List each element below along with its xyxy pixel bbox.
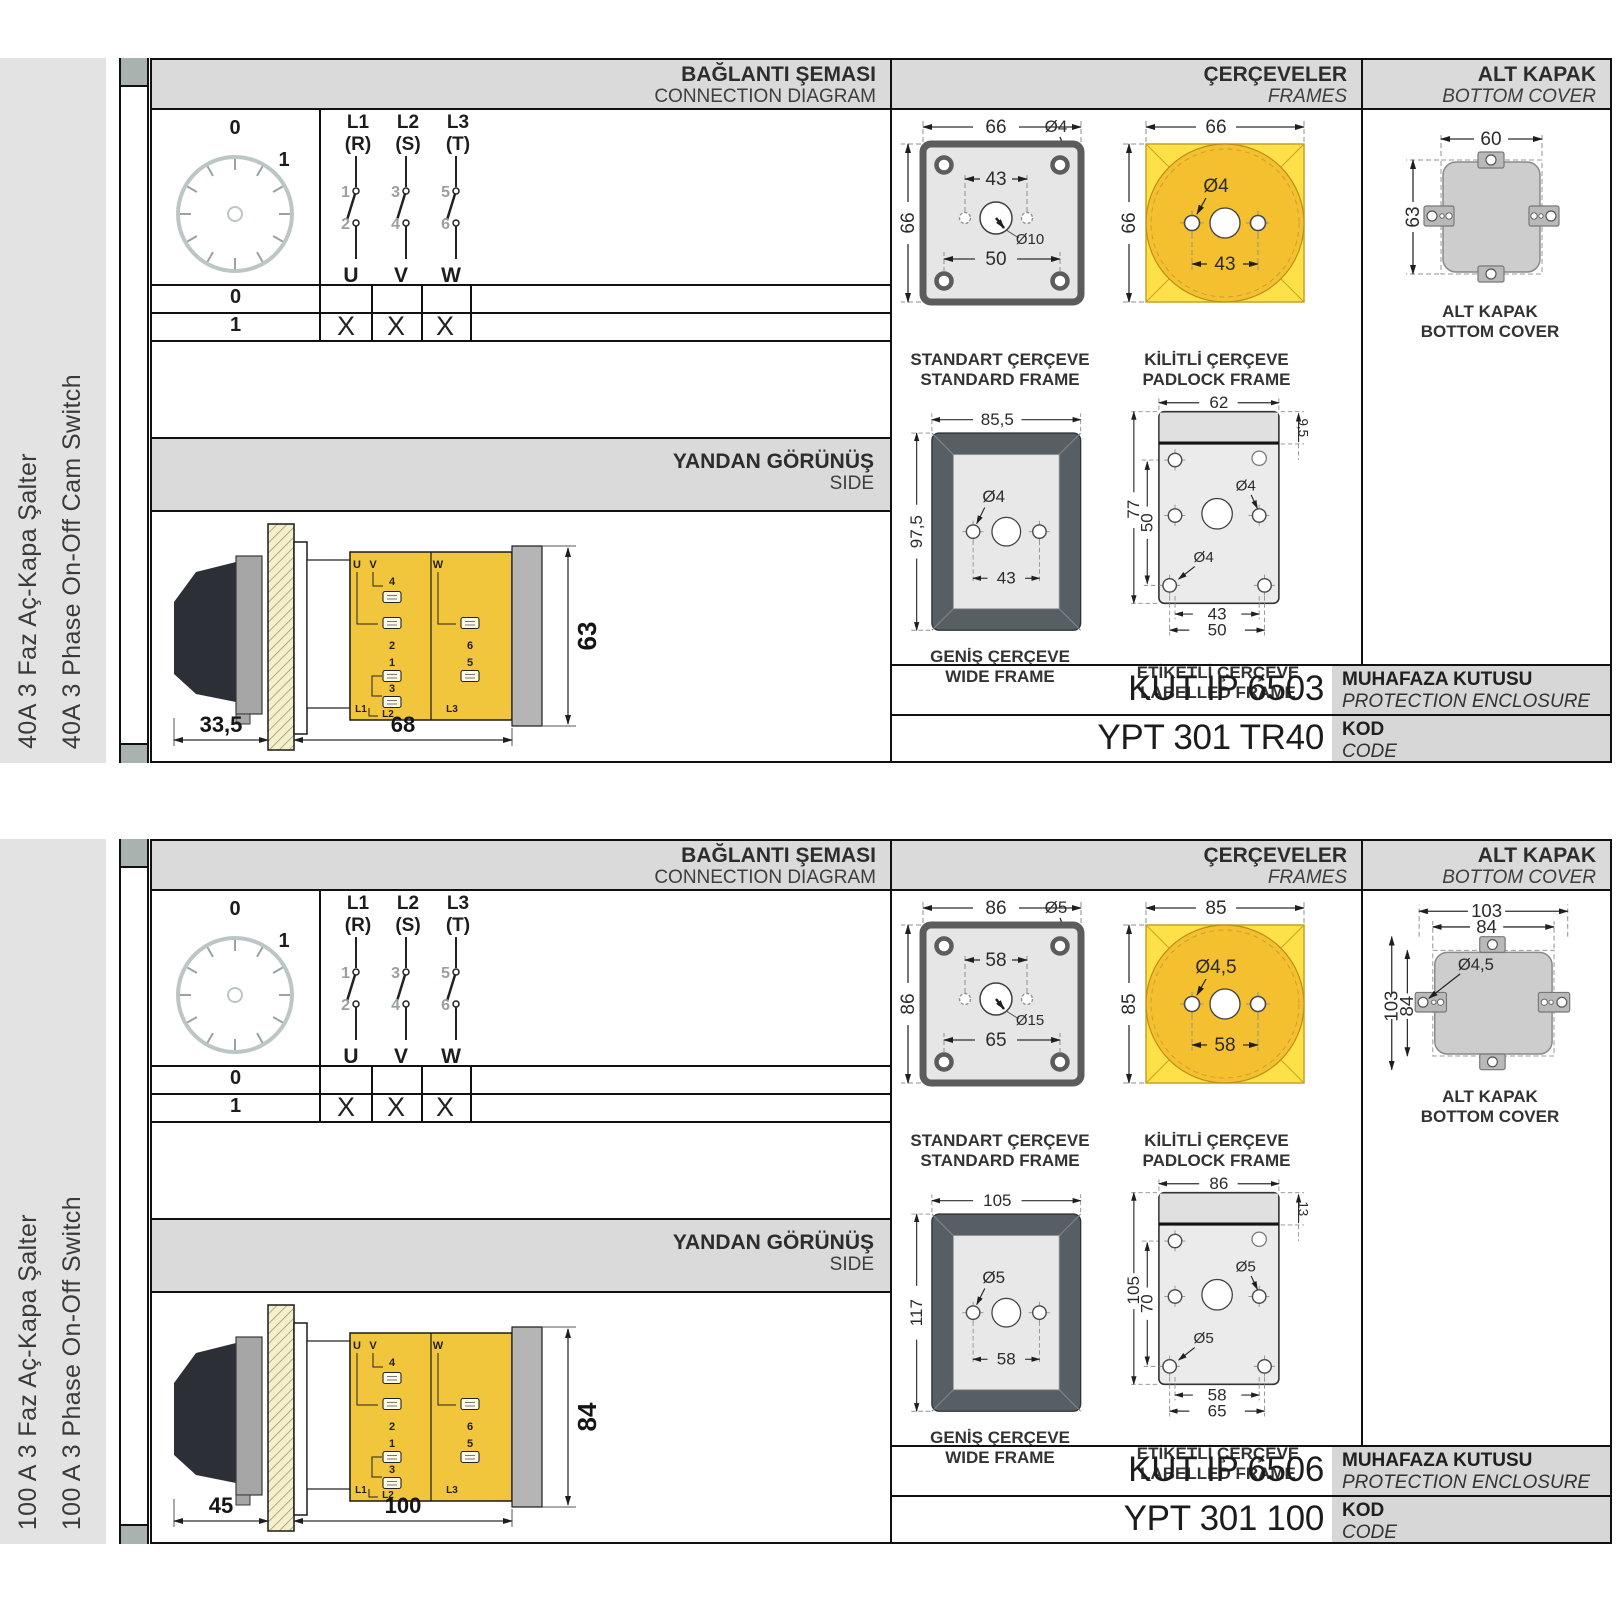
terminal-4: 4 xyxy=(391,997,400,1014)
l1-label: L1 xyxy=(347,893,370,914)
code-label-tr: KOD xyxy=(1342,718,1610,741)
mounting-plate xyxy=(236,556,262,714)
dial-position-0: 0 xyxy=(229,117,240,139)
terminal-3: 3 xyxy=(391,184,400,201)
enclosure-label-tr: MUHAFAZA KUTUSU xyxy=(1342,1449,1610,1472)
frames-column-border xyxy=(890,841,892,1542)
header-bottom-cover: ALT KAPAK BOTTOM COVER xyxy=(1361,60,1610,110)
standard-frame-drawing: 86 Ø5 86 58 Ø15 xyxy=(895,893,1105,1125)
dim-body-depth: 68 xyxy=(391,712,415,737)
dim-handle-depth: 45 xyxy=(209,1493,233,1518)
header-cover-tr: ALT KAPAK xyxy=(1363,844,1596,867)
lab-dim-width: 62 xyxy=(1209,393,1228,412)
catalog-page: 40A 3 Faz Aç-Kapa Şalter 40A 3 Phase On-… xyxy=(0,0,1623,1623)
terminal-6: 6 xyxy=(441,997,450,1014)
dim-handle-depth: 33,5 xyxy=(200,712,243,737)
cover-dim-width: 60 xyxy=(1480,129,1501,150)
terminal-4: 4 xyxy=(391,216,400,233)
switch-contact-diagram: L1 (R) 1 2 U L2 (S) 3 xyxy=(317,112,617,292)
side-band-en: SIDE xyxy=(152,473,874,494)
body-4: 4 xyxy=(389,1357,396,1369)
end-plate xyxy=(512,546,542,726)
panel-section xyxy=(268,1305,294,1531)
dim-body-depth: 100 xyxy=(385,1493,422,1518)
std-dim-height: 86 xyxy=(898,993,919,1014)
lab-dim-inner-h: 70 xyxy=(1138,1294,1157,1313)
pad-dim-height: 85 xyxy=(1119,993,1140,1014)
body-l3: L3 xyxy=(446,1485,458,1496)
phase-l1: L1 (R) 1 2 U xyxy=(341,112,371,287)
body-6: 6 xyxy=(467,640,473,652)
padlock-frame-figure: 85 85 Ø4,5 58 KİLİTLİ ÇERÇEVE xyxy=(1114,893,1319,1171)
wide-dia-hole: Ø5 xyxy=(982,1268,1005,1287)
table-line-3 xyxy=(152,1121,890,1123)
table-row-1-label: 1 xyxy=(152,314,319,337)
header-connection-diagram: BAĞLANTI ŞEMASI CONNECTION DIAGRAM xyxy=(152,60,890,110)
table-line-3 xyxy=(152,340,890,342)
side-view-drawing: U V W 4 2 6 1 5 3 xyxy=(164,1299,709,1539)
body-u: U xyxy=(353,1340,361,1352)
header-bottom-cover: ALT KAPAK BOTTOM COVER xyxy=(1361,841,1610,891)
dial-position-1: 1 xyxy=(278,930,289,952)
end-plate xyxy=(512,1327,542,1507)
body-v: V xyxy=(369,1340,377,1352)
body-1: 1 xyxy=(389,657,395,669)
terminal-2: 2 xyxy=(341,997,350,1014)
code-label-tr: KOD xyxy=(1342,1499,1610,1522)
product-title-turkish: 40A 3 Faz Aç-Kapa Şalter xyxy=(14,453,43,749)
switch-contact-diagram: L1 (R) 1 2 U L2 (S) 3 xyxy=(317,893,617,1073)
header-connection-tr: BAĞLANTI ŞEMASI xyxy=(152,63,876,86)
dim-height: 63 xyxy=(572,622,602,651)
code-label-en: CODE xyxy=(1342,741,1610,762)
enclosure-label-tr: MUHAFAZA KUTUSU xyxy=(1342,668,1610,691)
standard-frame-figure: 86 Ø5 86 58 Ø15 xyxy=(894,893,1106,1171)
lab-dim-strip: 9,5 xyxy=(1296,418,1311,437)
cover-dim-h-inner: 84 xyxy=(1396,996,1417,1017)
body-v: V xyxy=(369,559,377,571)
pad-caption-tr: KİLİTLİ ÇERÇEVE xyxy=(1144,350,1289,369)
l1-label: L1 xyxy=(347,112,370,133)
body-w: W xyxy=(433,559,444,571)
cover-caption-tr: ALT KAPAK xyxy=(1442,1087,1538,1106)
output-v: V xyxy=(394,1045,408,1068)
std-dia-corner: Ø5 xyxy=(1045,898,1068,917)
padlock-frame-figure: 66 66 Ø4 43 KİLİTLİ ÇERÇEVE xyxy=(1114,112,1319,390)
std-dim-top: 43 xyxy=(985,169,1006,190)
header-cover-en: BOTTOM COVER xyxy=(1363,86,1596,107)
wide-dim-height: 117 xyxy=(907,1299,926,1326)
l3-phase: (T) xyxy=(446,134,470,155)
sidebar: 40A 3 Faz Aç-Kapa Şalter 40A 3 Phase On-… xyxy=(0,58,106,763)
enclosure-label: MUHAFAZA KUTUSU PROTECTION ENCLOSURE xyxy=(1332,1445,1610,1495)
body-6: 6 xyxy=(467,1421,473,1433)
header-connection-diagram: BAĞLANTI ŞEMASI CONNECTION DIAGRAM xyxy=(152,841,890,891)
header-connection-en: CONNECTION DIAGRAM xyxy=(152,867,876,888)
terminal-1: 1 xyxy=(341,965,350,982)
phase-l1: L1 (R) 1 2 U xyxy=(341,893,371,1068)
table-row-0-label: 0 xyxy=(152,286,319,309)
product-section-40a: 40A 3 Faz Aç-Kapa Şalter 40A 3 Phase On-… xyxy=(0,58,1623,763)
std-caption-en: STANDARD FRAME xyxy=(920,1151,1079,1170)
wide-frame-figure: 105 117 Ø5 58 GENİŞ ÇERÇEVE WIDE FR xyxy=(894,1189,1106,1468)
body-l1: L1 xyxy=(355,704,367,715)
std-dim-bottom: 65 xyxy=(985,1030,1006,1051)
rotary-dial-diagram: 0 1 xyxy=(160,895,315,1067)
phase-l3: L3 (T) 5 6 W xyxy=(441,893,470,1068)
product-title-english: 100 A 3 Phase On-Off Switch xyxy=(58,1196,87,1530)
phase-l2: L2 (S) 3 4 V xyxy=(391,893,421,1068)
header-frames: ÇERÇEVELER FRAMES xyxy=(890,841,1361,891)
phase-l3: L3 (T) 5 6 W xyxy=(441,112,470,287)
pad-caption-en: PADLOCK FRAME xyxy=(1143,370,1291,389)
std-caption-tr: STANDART ÇERÇEVE xyxy=(910,1131,1089,1150)
wide-frame-figure: 85,5 97,5 Ø4 43 GENİŞ ÇERÇEVE WIDE xyxy=(894,408,1106,687)
l2-label: L2 xyxy=(397,112,419,133)
dim-height: 84 xyxy=(572,1402,602,1431)
body-w: W xyxy=(433,1340,444,1352)
body-2: 2 xyxy=(389,1421,395,1433)
l2-label: L2 xyxy=(397,893,419,914)
body-5: 5 xyxy=(467,1438,473,1450)
cover-body xyxy=(1443,162,1540,272)
cover-caption-en: BOTTOM COVER xyxy=(1421,322,1560,341)
lab-dia-bottom: Ø4 xyxy=(1194,549,1215,566)
sidebar: 100 A 3 Faz Aç-Kapa Şalter 100 A 3 Phase… xyxy=(0,839,106,1544)
std-dim-width: 66 xyxy=(985,117,1006,138)
contact-mark-v: X xyxy=(371,1092,421,1123)
switch-handle xyxy=(174,562,236,702)
product-code: YPT 301 100 xyxy=(890,1495,1332,1542)
output-v: V xyxy=(394,264,408,287)
bottom-cover-figure: 60 63 ALT KAPAK BOTTOM COVER xyxy=(1384,126,1596,342)
cover-column-border xyxy=(1361,60,1363,664)
cover-caption-en: BOTTOM COVER xyxy=(1421,1107,1560,1126)
std-dia-corner: Ø4 xyxy=(1045,117,1068,136)
phase-l2: L2 (S) 3 4 V xyxy=(391,112,421,287)
output-u: U xyxy=(343,264,358,287)
contact-mark-v: X xyxy=(371,311,421,342)
header-frames-en: FRAMES xyxy=(892,867,1347,888)
bottom-cover-drawing: 60 63 xyxy=(1384,126,1596,296)
body-1: 1 xyxy=(389,1438,395,1450)
enclosure-code: KUT IP 6506 xyxy=(890,1445,1332,1495)
dial-position-0: 0 xyxy=(229,898,240,920)
switch-handle xyxy=(174,1343,236,1483)
std-caption-tr: STANDART ÇERÇEVE xyxy=(910,350,1089,369)
side-band-tr: YANDAN GÖRÜNÜŞ xyxy=(152,450,874,473)
pad-dim-holes: 58 xyxy=(1214,1035,1235,1056)
lab-dia-top: Ø4 xyxy=(1236,477,1257,494)
product-title-english: 40A 3 Phase On-Off Cam Switch xyxy=(58,374,87,749)
lab-dim-width: 86 xyxy=(1209,1174,1228,1193)
labelled-frame-figure: 62 9,5 77 50 xyxy=(1118,392,1318,703)
body-2: 2 xyxy=(389,640,395,652)
mounting-plate xyxy=(236,1337,262,1495)
std-dim-width: 86 xyxy=(985,898,1006,919)
margin-column xyxy=(119,58,149,763)
cover-column-border xyxy=(1361,841,1363,1445)
pad-dim-height: 66 xyxy=(1119,212,1140,233)
wide-dim-holes: 58 xyxy=(997,1350,1016,1369)
body-3: 3 xyxy=(389,1464,395,1476)
output-w: W xyxy=(441,264,461,287)
std-dim-height: 66 xyxy=(898,212,919,233)
pad-dia-hole: Ø4,5 xyxy=(1195,957,1236,978)
output-w: W xyxy=(441,1045,461,1068)
product-section-100a: 100 A 3 Faz Aç-Kapa Şalter 100 A 3 Phase… xyxy=(0,839,1623,1544)
registration-mark-top xyxy=(121,839,147,868)
labelled-frame-figure: 86 13 105 70 xyxy=(1118,1173,1318,1484)
lab-dia-top: Ø5 xyxy=(1236,1258,1256,1275)
pad-dia-hole: Ø4 xyxy=(1203,176,1229,197)
wide-dim-width: 105 xyxy=(983,1191,1011,1210)
lab-dim-strip: 13 xyxy=(1296,1201,1311,1216)
l3-label: L3 xyxy=(447,112,469,133)
contact-mark-u: X xyxy=(321,1092,371,1123)
body-u: U xyxy=(353,559,361,571)
wide-dim-height: 97,5 xyxy=(907,515,926,548)
std-dim-bottom: 50 xyxy=(985,249,1006,270)
code-label: KOD CODE xyxy=(1332,1495,1610,1542)
side-view-drawing: U V W 4 2 6 1 5 3 xyxy=(164,518,709,758)
contact-mark-u: X xyxy=(321,311,371,342)
header-connection-tr: BAĞLANTI ŞEMASI xyxy=(152,844,876,867)
cover-dim-height: 63 xyxy=(1403,206,1424,227)
side-band-tr: YANDAN GÖRÜNÜŞ xyxy=(152,1231,874,1254)
rotary-dial-diagram: 0 1 xyxy=(160,114,315,286)
header-frames-tr: ÇERÇEVELER xyxy=(892,63,1347,86)
terminal-3: 3 xyxy=(391,965,400,982)
contact-mark-w: X xyxy=(420,1092,470,1123)
pad-dim-width: 66 xyxy=(1205,117,1226,138)
cover-dim-w-inner: 84 xyxy=(1476,916,1497,937)
bottom-cover-drawing: 103 84 103 84 Ø4,5 xyxy=(1380,899,1600,1081)
body-l3: L3 xyxy=(446,704,458,715)
l2-phase: (S) xyxy=(395,915,420,936)
l2-phase: (S) xyxy=(395,134,420,155)
side-band-en: SIDE xyxy=(152,1254,874,1275)
l3-phase: (T) xyxy=(446,915,470,936)
table-col-w xyxy=(470,284,472,340)
terminal-6: 6 xyxy=(441,216,450,233)
contact-mark-w: X xyxy=(420,311,470,342)
lab-dim-holes2: 65 xyxy=(1208,1402,1227,1421)
wide-dia-hole: Ø4 xyxy=(982,487,1005,506)
side-view-band: YANDAN GÖRÜNÜŞ SIDE xyxy=(152,437,890,512)
registration-mark-bottom xyxy=(121,1524,147,1544)
registration-mark-top xyxy=(121,58,147,87)
panel-section xyxy=(268,524,294,750)
header-cover-en: BOTTOM COVER xyxy=(1363,867,1596,888)
cover-dia: Ø4,5 xyxy=(1458,955,1494,974)
enclosure-label: MUHAFAZA KUTUSU PROTECTION ENCLOSURE xyxy=(1332,664,1610,714)
side-view-band: YANDAN GÖRÜNÜŞ SIDE xyxy=(152,1218,890,1293)
terminal-5: 5 xyxy=(441,965,450,982)
body-l1: L1 xyxy=(355,1485,367,1496)
body-5: 5 xyxy=(467,657,473,669)
datasheet-frame: BAĞLANTI ŞEMASI CONNECTION DIAGRAM ÇERÇE… xyxy=(150,58,1612,763)
std-dia-center: Ø15 xyxy=(1016,1012,1044,1029)
lab-dim-holes2: 50 xyxy=(1208,621,1227,640)
product-code: YPT 301 TR40 xyxy=(890,714,1332,761)
body-4: 4 xyxy=(389,576,396,588)
wide-dim-width: 85,5 xyxy=(981,410,1014,429)
header-frames: ÇERÇEVELER FRAMES xyxy=(890,60,1361,110)
std-dim-top: 58 xyxy=(985,950,1006,971)
header-frames-tr: ÇERÇEVELER xyxy=(892,844,1347,867)
wide-frame-drawing: 105 117 Ø5 58 xyxy=(905,1189,1095,1422)
enclosure-code: KUT IP 6503 xyxy=(890,664,1332,714)
output-u: U xyxy=(343,1045,358,1068)
margin-column xyxy=(119,839,149,1544)
code-label-en: CODE xyxy=(1342,1522,1610,1543)
pad-caption-en: PADLOCK FRAME xyxy=(1143,1151,1291,1170)
table-row-0-label: 0 xyxy=(152,1067,319,1090)
terminal-5: 5 xyxy=(441,184,450,201)
header-connection-en: CONNECTION DIAGRAM xyxy=(152,86,876,107)
enclosure-label-en: PROTECTION ENCLOSURE xyxy=(1342,1472,1610,1493)
code-label: KOD CODE xyxy=(1332,714,1610,761)
lab-dim-inner-h: 50 xyxy=(1138,513,1157,532)
product-title-turkish: 100 A 3 Faz Aç-Kapa Şalter xyxy=(14,1214,43,1530)
dial-position-1: 1 xyxy=(278,149,289,171)
cover-caption-tr: ALT KAPAK xyxy=(1442,302,1538,321)
header-frames-en: FRAMES xyxy=(892,86,1347,107)
header-cover-tr: ALT KAPAK xyxy=(1363,63,1596,86)
labelled-frame-drawing: 86 13 105 70 xyxy=(1123,1173,1313,1438)
labelled-frame-drawing: 62 9,5 77 50 xyxy=(1123,392,1313,657)
lab-dia-bottom: Ø5 xyxy=(1194,1330,1214,1347)
l1-phase: (R) xyxy=(345,134,371,155)
l3-label: L3 xyxy=(447,893,469,914)
pad-dim-holes: 43 xyxy=(1214,254,1235,275)
registration-mark-bottom xyxy=(121,743,147,763)
body-3: 3 xyxy=(389,683,395,695)
enclosure-label-en: PROTECTION ENCLOSURE xyxy=(1342,691,1610,712)
frames-column-border xyxy=(890,60,892,761)
padlock-frame-drawing: 85 85 Ø4,5 58 xyxy=(1114,893,1319,1125)
wide-dim-holes: 43 xyxy=(997,569,1016,588)
table-col-w xyxy=(470,1065,472,1121)
padlock-frame-drawing: 66 66 Ø4 43 xyxy=(1114,112,1319,344)
std-dia-center: Ø10 xyxy=(1016,231,1044,248)
standard-frame-drawing: 66 Ø4 66 43 Ø10 xyxy=(895,112,1105,344)
std-caption-en: STANDARD FRAME xyxy=(920,370,1079,389)
datasheet-frame: BAĞLANTI ŞEMASI CONNECTION DIAGRAM ÇERÇE… xyxy=(150,839,1612,1544)
l1-phase: (R) xyxy=(345,915,371,936)
table-row-1-label: 1 xyxy=(152,1095,319,1118)
bottom-cover-figure: 103 84 103 84 Ø4,5 ALT xyxy=(1380,899,1600,1127)
pad-dim-width: 85 xyxy=(1205,898,1226,919)
pad-caption-tr: KİLİTLİ ÇERÇEVE xyxy=(1144,1131,1289,1150)
terminal-1: 1 xyxy=(341,184,350,201)
wide-frame-drawing: 85,5 97,5 Ø4 43 xyxy=(905,408,1095,641)
terminal-2: 2 xyxy=(341,216,350,233)
standard-frame-figure: 66 Ø4 66 43 Ø10 xyxy=(894,112,1106,390)
